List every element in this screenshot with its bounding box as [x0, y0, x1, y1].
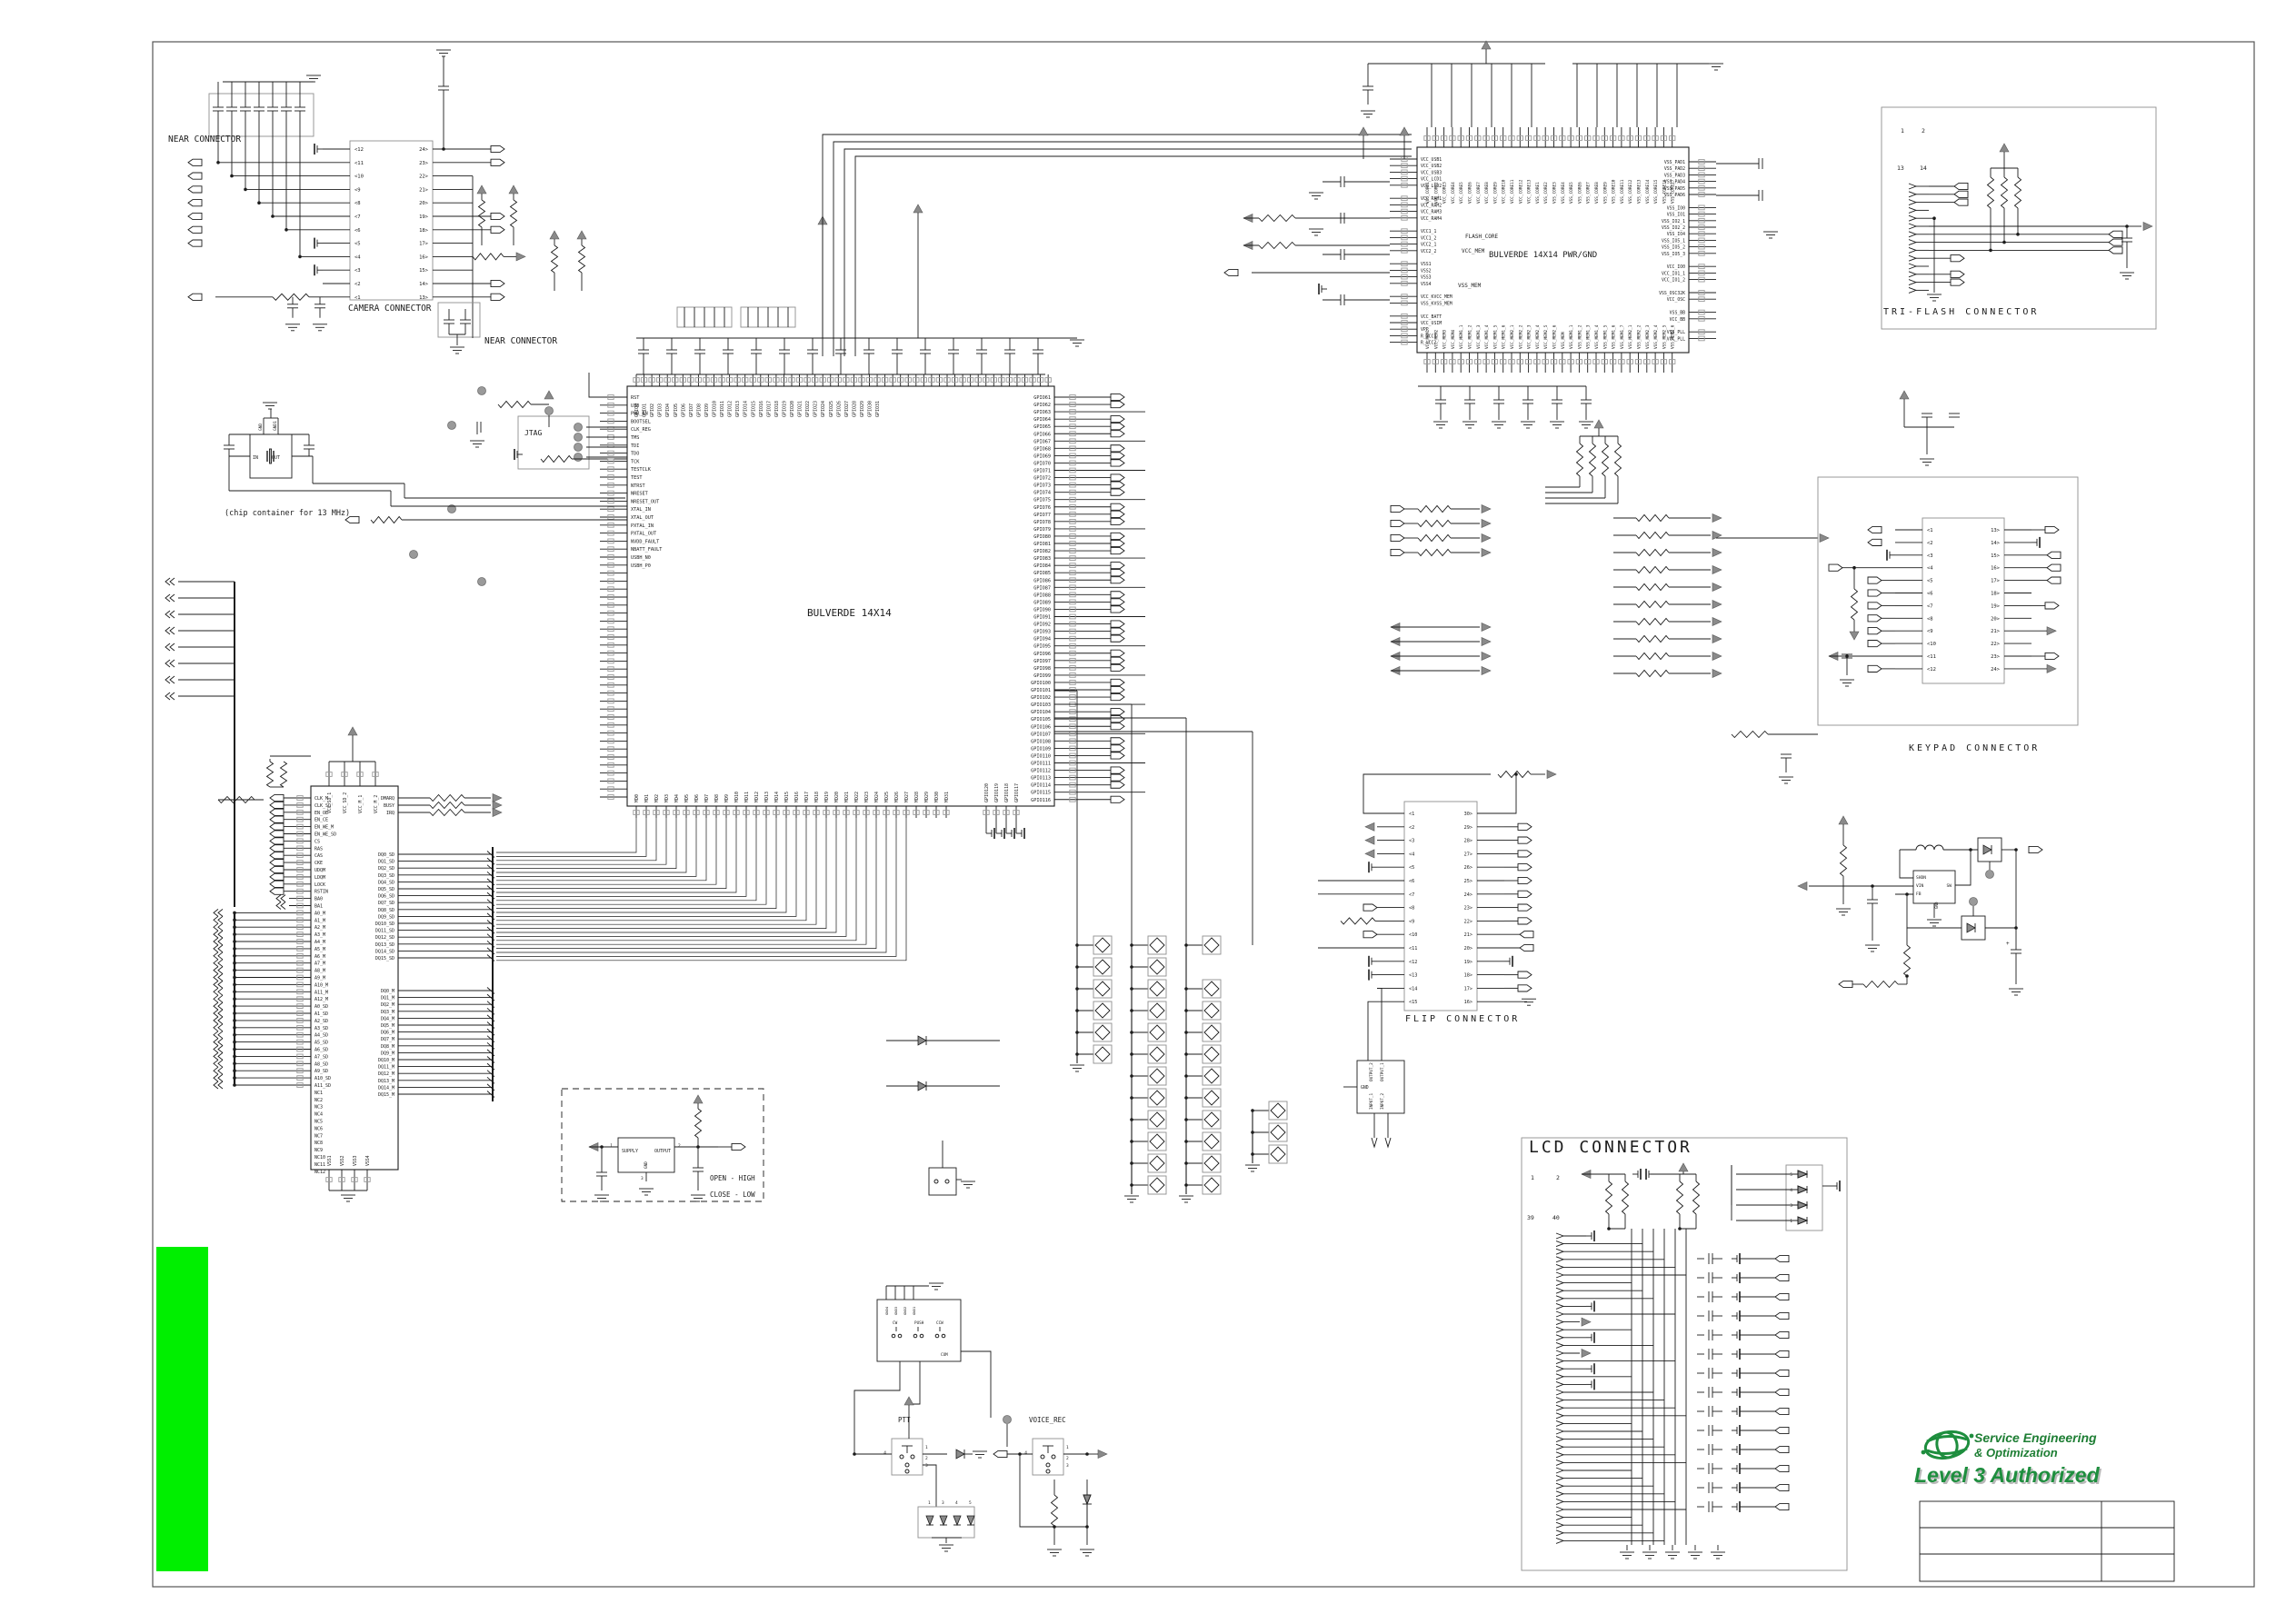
pin-label: 24>: [1991, 667, 2001, 673]
pin-label: 40: [1552, 1214, 1560, 1221]
pin-label: GPIO87: [1033, 585, 1051, 591]
pin-label: VCC_MEM1_2: [1468, 324, 1473, 349]
diode-cell: [1203, 1176, 1221, 1194]
pin-label: GND: [1361, 1085, 1369, 1091]
net-arrow: [1820, 534, 1829, 543]
pin-label: EN_CE: [314, 818, 328, 823]
pin-label: 18>: [1991, 592, 2001, 597]
signal-terminal: [2045, 653, 2059, 659]
pin-label: <3: [1927, 553, 1933, 559]
net-arrow: [2143, 223, 2152, 231]
diode-cell: [1148, 1111, 1166, 1129]
pin-label: RSTIN: [314, 890, 328, 895]
signal-terminal: [270, 802, 284, 808]
pin-label: GPIO111: [1031, 762, 1051, 767]
pin-label: GPIO75: [1033, 498, 1051, 503]
pin-label: A6_SD: [314, 1048, 328, 1053]
pin-label: VCC_OSC: [1667, 297, 1685, 303]
pin-label: IRQ: [386, 811, 394, 816]
pin-label: A5_M: [314, 947, 325, 952]
pin-label: DQ3_SD: [378, 873, 394, 879]
pin-label: 21>: [1991, 629, 2001, 634]
pin-label: <8: [1409, 906, 1414, 912]
signal-terminal: [2047, 577, 2061, 583]
data-bundle: [496, 818, 676, 869]
pin-label: 28>: [1464, 839, 1472, 844]
net-arrow: [1712, 514, 1722, 523]
pin-label: DQ0_M: [381, 989, 394, 994]
signal-terminal: [2045, 603, 2059, 609]
junction-dot: [1184, 987, 1188, 991]
net-arrow: [1482, 653, 1491, 661]
connector-pin: [1556, 1437, 1563, 1442]
resistor: [473, 254, 504, 260]
signal-terminal: [1391, 520, 1404, 526]
resistor: [498, 402, 531, 408]
junction-dot: [1251, 1131, 1254, 1134]
diode-cell: [1203, 1132, 1221, 1151]
signal-terminal: [270, 794, 284, 801]
junction-dot: [1184, 1118, 1188, 1121]
diode-cell: [1148, 980, 1166, 998]
pin-label: GPIO67: [1033, 439, 1051, 444]
pin-label: 18>: [419, 228, 429, 234]
voice-rec-switch: [1020, 1454, 1087, 1527]
pin-label: MD4: [674, 794, 680, 802]
pin-label: VCC_CORE12: [1518, 179, 1523, 204]
pin-label: NRESET: [631, 492, 648, 497]
pin-label: 4: [955, 1500, 958, 1506]
pin-label: A3_M: [314, 932, 325, 938]
resistor: [273, 294, 309, 300]
diode-cell: [1150, 1091, 1164, 1105]
lcd-connector-label: LCD CONNECTOR: [1529, 1138, 1692, 1157]
schematic-sheet: <1224><1123><1022><921><820><719><618><5…: [0, 0, 2296, 1624]
diode-cell: [1269, 1123, 1287, 1141]
signal-terminal: [1111, 547, 1124, 553]
pin-label: VCC2_1: [1421, 243, 1436, 248]
signal-terminal: [270, 881, 284, 887]
diode-cell: [1150, 1025, 1164, 1040]
signal-terminal: [270, 831, 284, 837]
pin-label: A0_SD: [314, 1004, 328, 1010]
bus-chevron: [218, 938, 223, 945]
pin-label: 13: [1897, 164, 1904, 172]
bus-chevron: [218, 981, 223, 988]
diode: [1798, 1171, 1807, 1178]
diode-cell: [1271, 1103, 1285, 1118]
sheet-frame: [153, 42, 2254, 1587]
pin-label: VSS_MEM1_6: [1612, 324, 1617, 349]
bus-chevron: [214, 931, 218, 938]
pin-label: GPIO95: [1033, 644, 1051, 650]
pin-label: GPIO66: [1033, 432, 1051, 437]
pin-label: 20>: [1991, 616, 2001, 622]
signal-terminal: [1111, 650, 1124, 656]
signal-terminal: [1111, 592, 1124, 598]
pin-label: BUSY: [384, 803, 394, 809]
signal-terminal: [1111, 394, 1124, 400]
resistor: [1693, 1181, 1700, 1214]
junction-dot: [216, 161, 220, 164]
data-bundle: [496, 818, 736, 892]
pin-label: GPIO120: [984, 783, 990, 802]
intersheet-nets: [855, 156, 1412, 356]
pin-label: VCC1_1: [1421, 229, 1436, 234]
resistor: [1498, 772, 1531, 778]
diode-cell: [1150, 938, 1164, 952]
inductor: [1925, 845, 1934, 850]
pin-label: 1: [1790, 1219, 1792, 1224]
signal-terminal: [1951, 271, 1964, 277]
pin-label: VSS_PAD2: [1664, 166, 1685, 172]
signal-terminal: [1951, 279, 1964, 285]
pin-label: VSS_CORE10: [1612, 179, 1617, 204]
pin-label: DMARQ: [381, 796, 394, 802]
pin-label: <3: [1409, 839, 1414, 844]
connector-pin: [1909, 232, 1916, 237]
near-connector-2-label: NEAR CONNECTOR: [484, 336, 557, 346]
pin-label: MD3: [664, 794, 670, 802]
pin-label: TDO: [631, 452, 639, 457]
pin-label: GPIO30: [868, 401, 873, 417]
pin-label: <3: [354, 268, 361, 274]
series-diodes: [929, 1168, 956, 1195]
pin-label: VSS_KVSS_MEM: [1421, 301, 1452, 306]
resistor: [1677, 1181, 1683, 1214]
signal-terminal: [1111, 445, 1124, 452]
resistor: [1636, 584, 1669, 591]
diode-cell: [1150, 1112, 1164, 1127]
pin-label: VSS_MEM1_3: [1586, 324, 1592, 349]
pin-label: 26>: [1464, 865, 1472, 871]
pin-label: MD8: [714, 794, 720, 802]
signal-terminal: [270, 866, 284, 872]
signal-terminal: [1111, 599, 1124, 605]
intersheet-nets: [834, 142, 1412, 356]
pin-label: A9_M: [314, 976, 325, 981]
test-point: [478, 578, 486, 586]
diode-cell: [1150, 1178, 1164, 1192]
signal-terminal: [2109, 239, 2122, 245]
resistor: [1988, 177, 1994, 208]
diode-cell: [1203, 1023, 1221, 1041]
pin-label: PXTAL_OUT: [631, 532, 656, 537]
signal-terminal: [2045, 526, 2059, 533]
jog-dial: [909, 1361, 920, 1404]
pin-label: VSS_MEM: [1458, 283, 1482, 289]
diode-cell: [1095, 960, 1110, 974]
pin-label: GPIO114: [1031, 783, 1051, 789]
net-arrow: [1582, 1350, 1591, 1358]
pin-label: <14: [1409, 986, 1417, 991]
diode-cell: [1204, 1178, 1219, 1192]
pin-label: GPIO22: [805, 401, 811, 417]
pin-label: GND3: [893, 1307, 898, 1315]
resistor: [371, 517, 402, 523]
bus-chevron: [214, 1039, 218, 1046]
bus-chevron: [170, 676, 175, 683]
pin-label: <5: [1409, 865, 1414, 871]
connector-pin: [1909, 224, 1916, 229]
connector-pin: [1556, 1296, 1563, 1301]
bus-chevron: [218, 923, 223, 931]
signal-terminal: [270, 860, 284, 866]
pin-label: DQ14_M: [378, 1085, 394, 1091]
bus-chevron: [214, 974, 218, 981]
diode-cell: [1150, 981, 1164, 996]
pin-label: TESTCLK: [631, 467, 652, 473]
junction-dot: [1184, 1161, 1188, 1165]
flip-connector-label: FLIP CONNECTOR: [1405, 1014, 1520, 1024]
jog-dial: [877, 1300, 961, 1361]
net-arrow: [1712, 549, 1722, 557]
junction-dot: [1184, 943, 1188, 947]
pin-label: GPIO81: [1033, 542, 1051, 547]
pin-label: GPIO72: [1033, 476, 1051, 482]
signal-terminal: [1954, 191, 1968, 197]
signal-terminal: [1111, 482, 1124, 488]
pin-label: MD13: [764, 792, 770, 802]
pin-label: GPIO103: [1031, 702, 1051, 708]
pin-label: MD27: [904, 792, 910, 802]
power-arrow: [550, 231, 559, 239]
diode-cell: [1203, 980, 1221, 998]
pin-label: GPIO17: [766, 401, 772, 417]
junction-dot: [285, 228, 288, 232]
pin-label: CCW: [936, 1320, 943, 1326]
pin-label: DQ6_SD: [378, 894, 394, 900]
pin-label: 2: [1066, 1456, 1069, 1461]
pin-label: MD19: [824, 792, 830, 802]
pin-label: MD20: [834, 792, 840, 802]
pin-label: DQ2_SD: [378, 866, 394, 872]
signal-terminal: [270, 816, 284, 822]
signal-terminal: [1518, 918, 1532, 924]
net-arrow: [1482, 638, 1491, 646]
pin-label: NC7: [314, 1133, 323, 1139]
resistor: [1590, 443, 1596, 476]
signal-terminal: [1111, 752, 1124, 759]
pin-label: COM: [941, 1352, 948, 1358]
connector-pin: [1556, 1444, 1563, 1450]
pin-label: VSS_OSC32K: [1659, 291, 1685, 296]
pin-label: VSS_MEM2_6: [1671, 324, 1676, 349]
pin-label: A8_SD: [314, 1061, 328, 1067]
diode-cell: [1095, 981, 1110, 996]
bus-chevron: [276, 895, 281, 902]
pin-label: VSS_CORE16: [1662, 179, 1667, 204]
pin-label: GND: [258, 423, 264, 431]
pin-label: <8: [1927, 616, 1933, 622]
net-arrow: [1482, 549, 1491, 557]
pin-label: 16>: [1991, 566, 2001, 572]
bus-chevron: [165, 627, 170, 634]
zener-diode: [1083, 1495, 1091, 1504]
resistor: [1615, 443, 1622, 476]
pin-label: GPIO61: [1033, 395, 1051, 401]
net-arrow: [2047, 627, 2056, 635]
logo-line1: Service Engineering: [1974, 1430, 2097, 1445]
bus-chevron: [218, 960, 223, 967]
power-arrow: [1359, 127, 1368, 135]
bus-chevron: [218, 1046, 223, 1053]
pin-label: <5: [1927, 579, 1933, 584]
pin-label: <11: [354, 161, 364, 166]
connector-pin: [1556, 1272, 1563, 1278]
dcdc-converter: [1955, 850, 1971, 885]
diode-cell: [1271, 1125, 1285, 1140]
pin-label: RAS: [314, 846, 323, 852]
pin-label: VSS2: [1421, 268, 1432, 274]
pin-label: 2: [1556, 1174, 1560, 1181]
pin-label: 1: [610, 1143, 613, 1149]
bus-chevron: [276, 902, 281, 910]
pin-label: VSS_IO1: [1667, 213, 1685, 218]
pin-label: VIN: [1916, 883, 1924, 889]
pin-label: GPIO115: [1031, 791, 1051, 796]
pin-label: <8: [354, 201, 361, 206]
pin-label: +: [2006, 941, 2010, 947]
pin-label: <4: [354, 254, 361, 260]
connector-pin: [1556, 1320, 1563, 1325]
pin-label: GPIO91: [1033, 615, 1051, 621]
pin-label: GPIO70: [1033, 461, 1051, 466]
connector-pin: [1556, 1390, 1563, 1395]
bus-chevron: [214, 1081, 218, 1089]
pin-label: VCC_MEM1_6: [1502, 324, 1507, 349]
pin-label: <12: [354, 147, 364, 153]
connector-pin: [1909, 264, 1916, 269]
signal-terminal: [1868, 628, 1882, 634]
diode-cell: [1204, 1156, 1219, 1171]
pin-label: GPIO2: [650, 404, 655, 417]
signal-terminal: [1111, 453, 1124, 459]
signal-terminal: [1775, 1503, 1789, 1509]
pin-label: VSS_MEM1_7: [1620, 324, 1625, 349]
pin-label: <15: [1409, 1000, 1417, 1005]
pin-label: CS: [314, 839, 320, 844]
connector-pin: [1556, 1405, 1563, 1410]
pin-label: VSS_CORE4: [1561, 182, 1566, 204]
logo-line3: Level 3 Authorized: [1914, 1463, 2100, 1488]
junction-dot: [1251, 1152, 1254, 1156]
data-bundle: [496, 818, 766, 904]
connector-pin: [1909, 240, 1916, 245]
pin-label: NC8: [314, 1141, 323, 1146]
pin-label: GND1: [912, 1306, 916, 1315]
signal-terminal: [1111, 709, 1124, 715]
connector-pin: [1556, 1507, 1563, 1512]
pin-label: MD25: [884, 792, 890, 802]
connector-pin: [1556, 1515, 1563, 1520]
pin-label: 21>: [419, 187, 429, 193]
pin-label: GPIO16: [759, 401, 764, 417]
connector-pin: [1556, 1530, 1563, 1536]
diode: [953, 1516, 961, 1525]
signal-terminal: [1775, 1484, 1789, 1490]
pin-label: A11_M: [314, 990, 328, 995]
pin-label: GPIO85: [1033, 571, 1051, 576]
pin-label: GPIO69: [1033, 453, 1051, 459]
diode-cell: [1095, 1003, 1110, 1018]
pin-label: MD2: [654, 794, 660, 802]
pin-label: GPIO71: [1033, 469, 1051, 474]
pin-label: VCC_USB1: [1421, 157, 1442, 163]
pin-label: <9: [1409, 919, 1414, 924]
pin-label: GPIO101: [1031, 688, 1051, 693]
pin-label: BA0: [314, 897, 323, 902]
connector-pin: [1556, 1327, 1563, 1332]
pin-label: GPIO102: [1031, 695, 1051, 701]
data-bundle: [496, 818, 786, 912]
pin-label: GPIO113: [1031, 776, 1051, 782]
signal-terminal: [1518, 837, 1532, 843]
pin-label: 1: [925, 1445, 928, 1450]
pin-label: 22>: [1464, 919, 1472, 924]
pin-label: DQ12_SD: [375, 935, 394, 941]
diode-cell: [1093, 980, 1112, 998]
signal-terminal: [270, 873, 284, 880]
pin-label: 4: [1790, 1188, 1792, 1193]
connector-pin: [1556, 1241, 1563, 1247]
pin-label: NC1: [314, 1091, 323, 1096]
pin-label: DQ3_M: [381, 1010, 394, 1015]
pin-label: GPIO7: [689, 404, 694, 417]
pin-label: DQ9_M: [381, 1051, 394, 1056]
pin-label: MD22: [854, 792, 860, 802]
pin-label: 29>: [1464, 825, 1472, 831]
pin-label: 24>: [419, 147, 429, 153]
signal-terminal: [1111, 621, 1124, 627]
pin-label: <12: [1409, 960, 1417, 965]
misc-wires: [589, 373, 600, 397]
pin-label: DQ12_M: [378, 1071, 394, 1077]
pin-label: VCC_MEM2_4: [1535, 324, 1541, 349]
data-bundle: [496, 818, 726, 889]
signal-terminal: [1111, 796, 1124, 802]
bus-chevron: [281, 895, 285, 902]
test-point: [1003, 1416, 1012, 1424]
net-arrow: [1482, 623, 1491, 632]
pin-label: DQ11_M: [378, 1065, 394, 1071]
pin-label: VSS_MEM2_3: [1645, 324, 1651, 349]
data-bundle: [496, 818, 756, 901]
pin-label: 3: [925, 1463, 928, 1469]
pin-label: GPIO107: [1031, 732, 1051, 737]
pin-label: NC9: [314, 1148, 323, 1153]
pin-label: VCC_RAM3: [1421, 210, 1442, 215]
pin-label: GPIO83: [1033, 556, 1051, 562]
signal-terminal: [1111, 401, 1124, 407]
diode-cell: [1095, 1025, 1110, 1040]
junction-dot: [257, 201, 261, 204]
pin-label: DQ1_SD: [378, 860, 394, 865]
pin-label: 4: [1024, 1450, 1027, 1456]
pin-label: DQ7_M: [381, 1037, 394, 1042]
bus-chevron: [214, 952, 218, 960]
pin-label: DQ1_M: [381, 996, 394, 1001]
jog-dial: [920, 1334, 923, 1338]
pin-label: A1_M: [314, 918, 325, 923]
bus-chevron: [214, 981, 218, 988]
pin-label: GPIO116: [1031, 798, 1051, 803]
connector-pin: [1556, 1311, 1563, 1317]
pin-label: <6: [354, 228, 361, 234]
pin-label: <6: [1409, 879, 1414, 884]
bus-chevron: [218, 916, 223, 923]
pin-label: MD29: [924, 792, 930, 802]
